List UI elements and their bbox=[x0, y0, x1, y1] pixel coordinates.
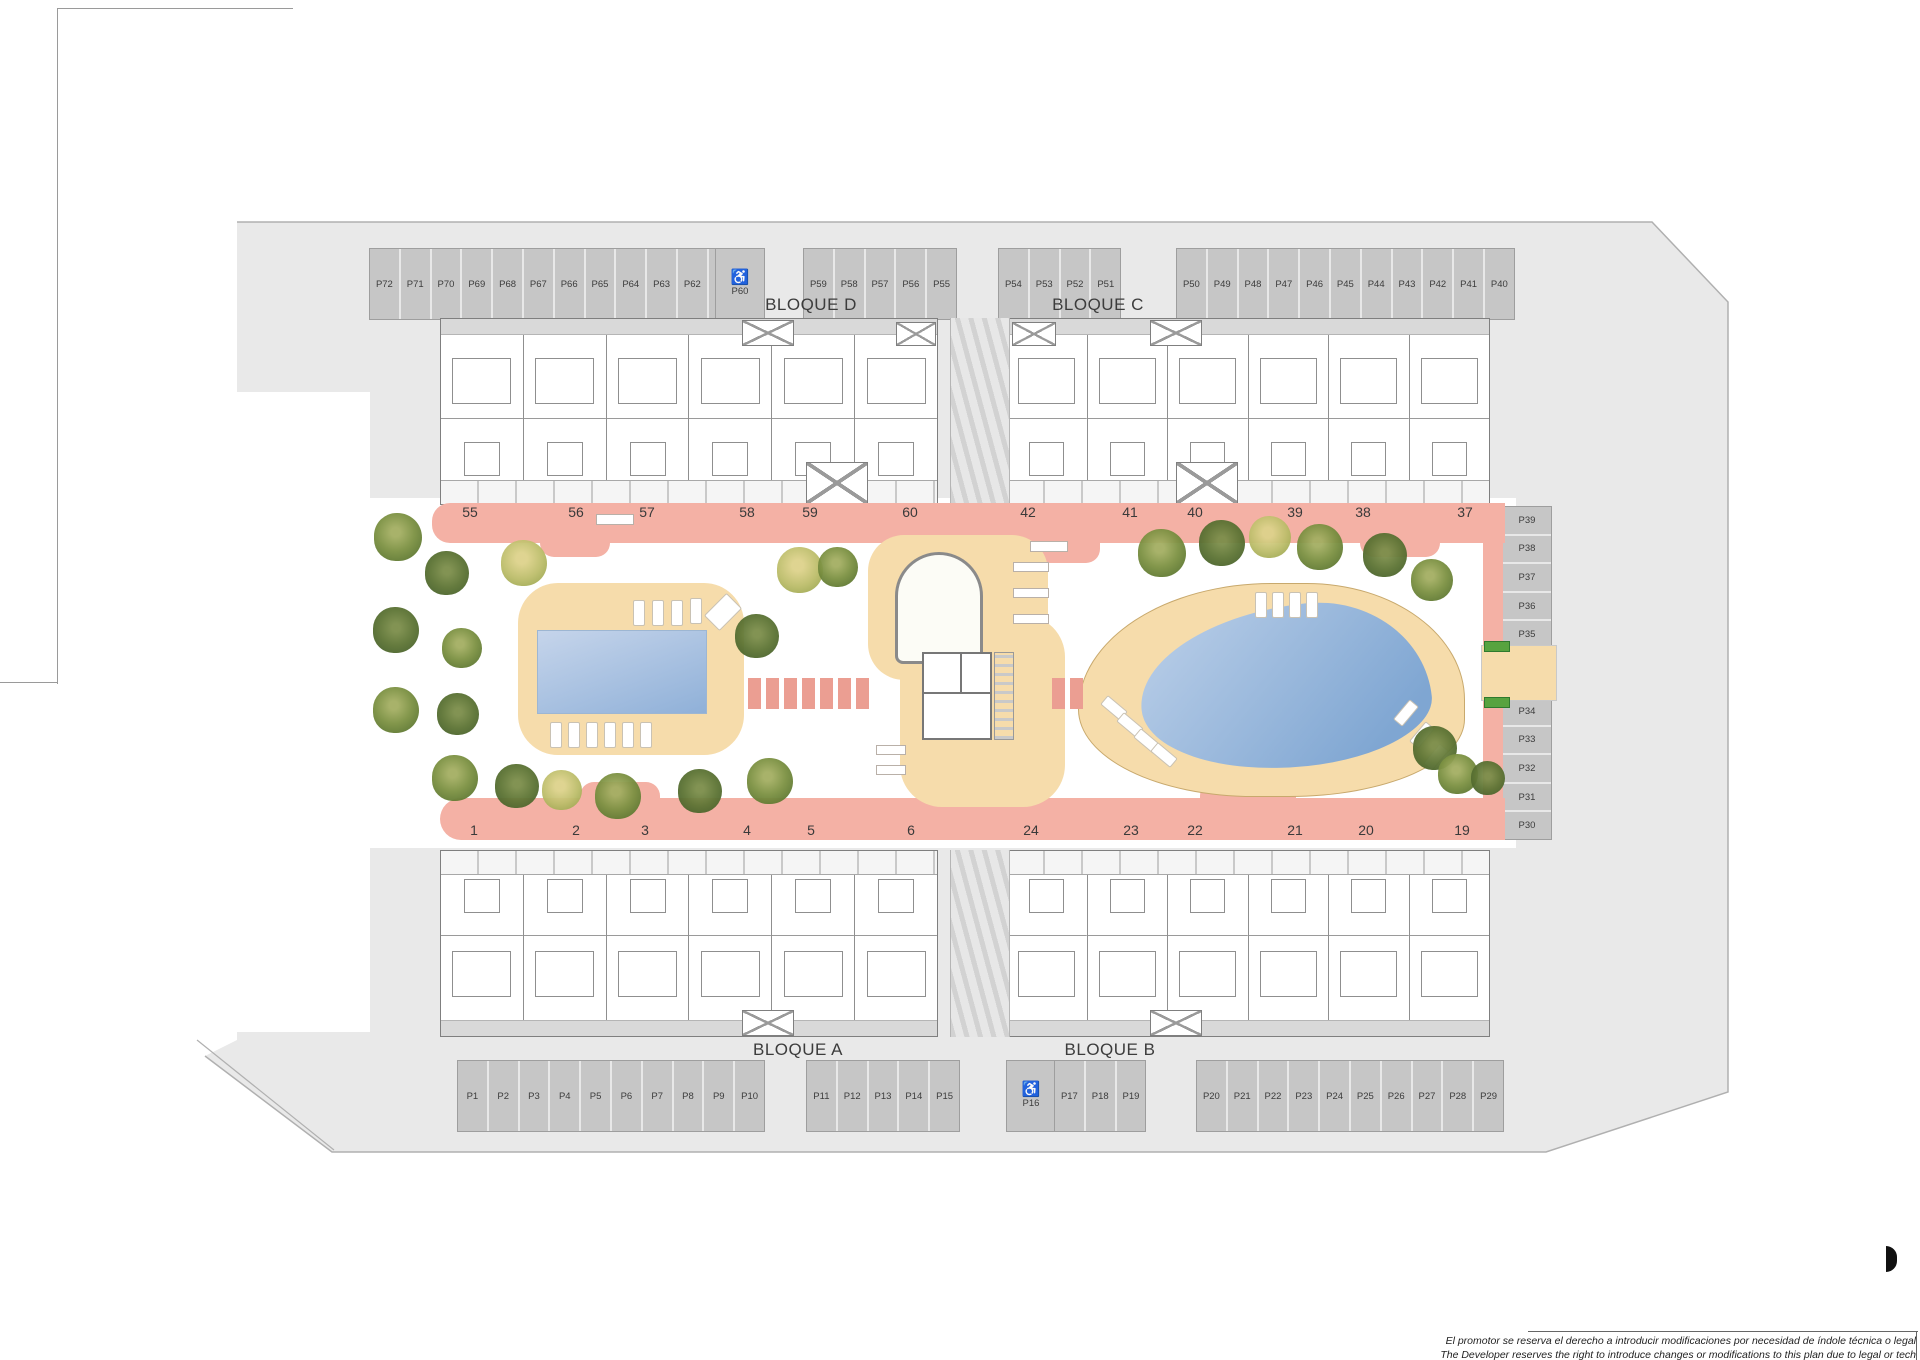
apartment-unit bbox=[1168, 335, 1249, 480]
tree-icon bbox=[501, 540, 547, 586]
tree-icon bbox=[1138, 529, 1186, 577]
tree-icon bbox=[818, 547, 858, 587]
parking-stall: P49 bbox=[1208, 249, 1239, 319]
parking-stall: P69 bbox=[462, 249, 493, 319]
parking-stall: P46 bbox=[1300, 249, 1331, 319]
parking-stall: P33 bbox=[1503, 727, 1551, 756]
stair-core bbox=[806, 462, 868, 504]
crosswalk-stripe bbox=[820, 678, 833, 709]
parking-stall: P12 bbox=[838, 1061, 869, 1131]
apartment-unit bbox=[1329, 875, 1410, 1020]
parking-stall-label: P28 bbox=[1449, 1091, 1466, 1102]
tree-icon bbox=[1297, 524, 1343, 570]
parking-stall: P31 bbox=[1503, 784, 1551, 813]
parking-stall-label: P34 bbox=[1519, 706, 1536, 717]
stair-core bbox=[742, 320, 794, 346]
stair-core bbox=[896, 322, 936, 346]
parking-stall-label: P15 bbox=[936, 1091, 953, 1102]
stair-core bbox=[1150, 320, 1202, 346]
gate-tag bbox=[1484, 697, 1510, 708]
parking-stall-accessible-p16: ♿ P16 bbox=[1007, 1061, 1055, 1131]
tree-icon bbox=[1199, 520, 1245, 566]
bench bbox=[876, 765, 906, 775]
apartment-unit bbox=[1249, 335, 1330, 480]
building-bloque-c bbox=[1006, 318, 1490, 505]
bench bbox=[596, 514, 634, 525]
tree-icon bbox=[373, 687, 419, 733]
parking-stall: P22 bbox=[1259, 1061, 1290, 1131]
parking-stall: P67 bbox=[524, 249, 555, 319]
crosswalk-stripe bbox=[1052, 678, 1065, 709]
unit-number: 19 bbox=[1454, 822, 1470, 838]
parking-group-bottom-mid-b: P17P18P19 bbox=[1055, 1061, 1145, 1131]
roof-strip bbox=[1007, 319, 1489, 335]
unit-numbers-top-right: 424140393837 bbox=[0, 504, 1920, 522]
driveway-hatch-top bbox=[950, 318, 1010, 505]
sun-lounger bbox=[550, 722, 562, 748]
parking-stall-label: P46 bbox=[1306, 279, 1323, 290]
unit-number: 23 bbox=[1123, 822, 1139, 838]
frame-top-line bbox=[57, 8, 293, 9]
unit-number: 22 bbox=[1187, 822, 1203, 838]
parking-stall: P38 bbox=[1503, 536, 1551, 565]
apartment-unit bbox=[441, 335, 524, 480]
parking-stall: P17 bbox=[1055, 1061, 1086, 1131]
page-registration-mark bbox=[1886, 1246, 1897, 1272]
parking-stall-label: P40 bbox=[1491, 279, 1508, 290]
tree-icon bbox=[1363, 533, 1407, 577]
tree-icon bbox=[777, 547, 823, 593]
parking-stall: P10 bbox=[735, 1061, 764, 1131]
parking-stall-label: P44 bbox=[1368, 279, 1385, 290]
tree-icon bbox=[1471, 761, 1505, 795]
parking-stall: P27 bbox=[1413, 1061, 1444, 1131]
parking-stall-label: P27 bbox=[1419, 1091, 1436, 1102]
sun-lounger bbox=[690, 598, 702, 624]
apartment-unit bbox=[607, 335, 690, 480]
sun-lounger bbox=[633, 600, 645, 626]
parking-stall: P57 bbox=[866, 249, 897, 319]
parking-stall: P20 bbox=[1197, 1061, 1228, 1131]
gate-tag bbox=[1484, 641, 1510, 652]
tree-icon bbox=[678, 769, 722, 813]
parking-stall-label: P14 bbox=[905, 1091, 922, 1102]
tree-icon bbox=[495, 764, 539, 808]
apartment-unit bbox=[1088, 875, 1169, 1020]
wheelchair-icon: ♿ bbox=[1022, 1083, 1041, 1097]
sun-lounger bbox=[586, 722, 598, 748]
bench bbox=[1030, 541, 1068, 552]
tree-icon bbox=[595, 773, 641, 819]
apartment-unit bbox=[1088, 335, 1169, 480]
parking-stall-label: P67 bbox=[530, 279, 547, 290]
titleblock-side-line bbox=[1916, 1331, 1917, 1360]
parking-stall-label: P47 bbox=[1275, 279, 1292, 290]
parking-stall-label: P18 bbox=[1092, 1091, 1109, 1102]
parking-stall: P56 bbox=[896, 249, 927, 319]
tree-icon bbox=[442, 628, 482, 668]
frame-left-tick bbox=[0, 682, 57, 683]
unit-number: 42 bbox=[1020, 504, 1036, 520]
parking-stall: P37 bbox=[1503, 564, 1551, 593]
parking-stall: P36 bbox=[1503, 593, 1551, 622]
crosswalk-stripe bbox=[1070, 678, 1083, 709]
parking-stall-label: P33 bbox=[1519, 734, 1536, 745]
crosswalk-stripe bbox=[766, 678, 779, 709]
unit-number: 37 bbox=[1457, 504, 1473, 520]
parking-stall-label: P38 bbox=[1519, 543, 1536, 554]
parking-stall-label: P29 bbox=[1480, 1091, 1497, 1102]
parking-stall: P21 bbox=[1228, 1061, 1259, 1131]
parking-stall-label: P21 bbox=[1234, 1091, 1251, 1102]
apartment-unit bbox=[689, 335, 772, 480]
tree-icon bbox=[432, 755, 478, 801]
tree-icon bbox=[1249, 516, 1291, 558]
playground-enclosure bbox=[895, 552, 983, 664]
parking-stall: P70 bbox=[432, 249, 463, 319]
parking-stall: P71 bbox=[401, 249, 432, 319]
tree-icon bbox=[542, 770, 582, 810]
parking-stall-label: P31 bbox=[1519, 792, 1536, 803]
entrance-gate-area bbox=[1481, 645, 1557, 701]
parking-stall-label: P25 bbox=[1357, 1091, 1374, 1102]
parking-stall-label: P69 bbox=[468, 279, 485, 290]
apartment-unit bbox=[1410, 875, 1490, 1020]
disclaimer: El promotor se reserva el derecho a intr… bbox=[1440, 1335, 1916, 1360]
parking-stall: P19 bbox=[1117, 1061, 1146, 1131]
parking-stall-label: P72 bbox=[376, 279, 393, 290]
parking-stall-label: P62 bbox=[684, 279, 701, 290]
parking-stall-label: P36 bbox=[1519, 601, 1536, 612]
tree-icon bbox=[735, 614, 779, 658]
parking-stall: P42 bbox=[1423, 249, 1454, 319]
apartment-unit bbox=[441, 875, 524, 1020]
parking-stall-label: P3 bbox=[528, 1091, 540, 1102]
tree-icon bbox=[373, 607, 419, 653]
parking-stall-label: P13 bbox=[875, 1091, 892, 1102]
parking-stall: P47 bbox=[1269, 249, 1300, 319]
parking-stall-label: P9 bbox=[713, 1091, 725, 1102]
parking-stall-label: P52 bbox=[1067, 279, 1084, 290]
parking-stall-label: P1 bbox=[467, 1091, 479, 1102]
parking-stall: P55 bbox=[927, 249, 956, 319]
apartment-unit bbox=[524, 335, 607, 480]
parking-stall: P68 bbox=[493, 249, 524, 319]
sun-lounger bbox=[1289, 592, 1301, 618]
unit-number: 20 bbox=[1358, 822, 1374, 838]
parking-stall-label: P5 bbox=[590, 1091, 602, 1102]
terrace-strip bbox=[1007, 851, 1489, 875]
stair-core bbox=[1012, 322, 1056, 346]
parking-stall: P9 bbox=[704, 1061, 735, 1131]
parking-stall-label: P24 bbox=[1326, 1091, 1343, 1102]
apartment-unit bbox=[1249, 875, 1330, 1020]
parking-stall-label: P42 bbox=[1429, 279, 1446, 290]
parking-stall-label: P59 bbox=[810, 279, 827, 290]
crosswalk-stripe bbox=[802, 678, 815, 709]
parking-stall: P44 bbox=[1362, 249, 1393, 319]
parking-stall: P28 bbox=[1443, 1061, 1474, 1131]
parking-stall-label: P63 bbox=[653, 279, 670, 290]
tree-icon bbox=[1411, 559, 1453, 601]
parking-stall-label: P56 bbox=[902, 279, 919, 290]
parking-stall: P66 bbox=[555, 249, 586, 319]
parking-stall-label: P53 bbox=[1036, 279, 1053, 290]
parking-group-bottom-left: P1P2P3P4P5P6P7P8P9P10 bbox=[458, 1061, 764, 1131]
disclaimer-line-es: El promotor se reserva el derecho a intr… bbox=[1440, 1335, 1916, 1349]
parking-stall: P72 bbox=[370, 249, 401, 319]
driveway-hatch-bottom bbox=[950, 850, 1010, 1037]
pool-house bbox=[922, 652, 992, 740]
parking-group-top-right: P50P49P48P47P46P45P44P43P42P41P40 bbox=[1177, 249, 1514, 319]
parking-stall-label: P57 bbox=[872, 279, 889, 290]
parking-stall-label: P50 bbox=[1183, 279, 1200, 290]
apartment-unit bbox=[1329, 335, 1410, 480]
parking-stall-label: P8 bbox=[682, 1091, 694, 1102]
parking-stall-label: P54 bbox=[1005, 279, 1022, 290]
parking-stall-label: P11 bbox=[813, 1091, 829, 1102]
stair-core bbox=[742, 1010, 794, 1036]
stair-core bbox=[1176, 462, 1238, 504]
parking-stall-accessible-p60: ♿ P60 bbox=[716, 249, 764, 319]
unit-numbers-bottom-right: 242322212019 bbox=[0, 822, 1920, 840]
bench bbox=[1013, 588, 1049, 598]
parking-stall-label: P10 bbox=[741, 1091, 758, 1102]
parking-stall: P65 bbox=[586, 249, 617, 319]
roof-strip bbox=[441, 319, 937, 335]
parking-group-right-lower: P34P33P32P31P30 bbox=[1503, 698, 1551, 839]
unit-number: 40 bbox=[1187, 504, 1203, 520]
apartment-unit bbox=[1410, 335, 1490, 480]
parking-stall: P6 bbox=[612, 1061, 643, 1131]
parking-stall: P35 bbox=[1503, 621, 1551, 648]
parking-stall: P48 bbox=[1239, 249, 1270, 319]
parking-stall-label: P64 bbox=[622, 279, 639, 290]
titleblock-top-line bbox=[1528, 1331, 1918, 1332]
parking-stall: P43 bbox=[1393, 249, 1424, 319]
parking-stall: P63 bbox=[647, 249, 678, 319]
parking-stall-label: P19 bbox=[1123, 1091, 1140, 1102]
parking-stall: P15 bbox=[930, 1061, 959, 1131]
parking-stall: P50 bbox=[1177, 249, 1208, 319]
parking-stall: P8 bbox=[674, 1061, 705, 1131]
parking-stall: P18 bbox=[1086, 1061, 1117, 1131]
left-pool-water bbox=[537, 630, 707, 714]
parking-stall-label: P2 bbox=[497, 1091, 509, 1102]
bench bbox=[1013, 562, 1049, 572]
apartment-unit bbox=[607, 875, 690, 1020]
wheelchair-icon: ♿ bbox=[731, 271, 750, 285]
parking-stall: P32 bbox=[1503, 755, 1551, 784]
parking-stall-label: P49 bbox=[1214, 279, 1231, 290]
parking-stall-label: P66 bbox=[561, 279, 578, 290]
parking-stall: P25 bbox=[1351, 1061, 1382, 1131]
crosswalk-stripe bbox=[856, 678, 869, 709]
sun-lounger bbox=[1272, 592, 1284, 618]
parking-stall-label: P35 bbox=[1519, 629, 1536, 640]
apartment-unit bbox=[524, 875, 607, 1020]
parking-stall: P14 bbox=[899, 1061, 930, 1131]
parking-stall: P1 bbox=[458, 1061, 489, 1131]
sun-lounger bbox=[652, 600, 664, 626]
sun-lounger bbox=[671, 600, 683, 626]
parking-stall-label: P4 bbox=[559, 1091, 571, 1102]
parking-stall-label: P17 bbox=[1061, 1091, 1078, 1102]
bench bbox=[876, 745, 906, 755]
parking-stall-label: P65 bbox=[592, 279, 609, 290]
parking-stall: P7 bbox=[643, 1061, 674, 1131]
apartment-unit bbox=[855, 875, 937, 1020]
parking-group-right-upper: P39P38P37P36P35 bbox=[1503, 507, 1551, 648]
label-bloque-c: BLOQUE C bbox=[1052, 295, 1144, 315]
parking-stall-label: P70 bbox=[438, 279, 455, 290]
parking-stall-label: P26 bbox=[1388, 1091, 1405, 1102]
parking-stall-label: P16 bbox=[1023, 1098, 1040, 1109]
parking-stall: P11 bbox=[807, 1061, 838, 1131]
frame-left-line bbox=[57, 8, 58, 684]
apartment-unit bbox=[772, 875, 855, 1020]
sun-lounger bbox=[1306, 592, 1318, 618]
unit-number: 41 bbox=[1122, 504, 1138, 520]
parking-stall-label: P12 bbox=[844, 1091, 861, 1102]
apartment-unit bbox=[1168, 875, 1249, 1020]
parking-group-bottom-right: P20P21P22P23P24P25P26P27P28P29 bbox=[1197, 1061, 1503, 1131]
sun-lounger bbox=[622, 722, 634, 748]
parking-stall: P23 bbox=[1289, 1061, 1320, 1131]
path-planter bbox=[540, 541, 610, 557]
parking-stall-label: P43 bbox=[1399, 279, 1416, 290]
tree-icon bbox=[747, 758, 793, 804]
label-bloque-b: BLOQUE B bbox=[1065, 1040, 1156, 1060]
crosswalk-stripe bbox=[748, 678, 761, 709]
parking-stall-label: P68 bbox=[499, 279, 516, 290]
bench bbox=[1013, 614, 1049, 624]
unit-number: 39 bbox=[1287, 504, 1303, 520]
parking-stall-label: P60 bbox=[732, 286, 749, 297]
parking-group-top-left: P72P71P70P69P68P67P66P65P64P63P62P61 bbox=[370, 249, 738, 319]
unit-number: 24 bbox=[1023, 822, 1039, 838]
parking-stall-label: P22 bbox=[1265, 1091, 1282, 1102]
building-bloque-a bbox=[440, 850, 938, 1037]
terrace-strip bbox=[441, 851, 937, 875]
unit-number: 21 bbox=[1287, 822, 1303, 838]
disclaimer-line-en: The Developer reserves the right to intr… bbox=[1440, 1349, 1916, 1360]
site-plan-sheet: P72P71P70P69P68P67P66P65P64P63P62P61 ♿ P… bbox=[0, 0, 1920, 1360]
crosswalk-stripe bbox=[838, 678, 851, 709]
parking-stall: P26 bbox=[1382, 1061, 1413, 1131]
apartment-unit bbox=[772, 335, 855, 480]
tree-icon bbox=[374, 513, 422, 561]
parking-stall-label: P51 bbox=[1097, 279, 1114, 290]
parking-stall: P29 bbox=[1474, 1061, 1503, 1131]
parking-stall: P62 bbox=[678, 249, 709, 319]
apartment-unit bbox=[855, 335, 937, 480]
parking-stall-label: P32 bbox=[1519, 763, 1536, 774]
parking-stall-label: P58 bbox=[841, 279, 858, 290]
sun-lounger bbox=[568, 722, 580, 748]
pool-house-ramp bbox=[994, 652, 1014, 740]
parking-stall: P41 bbox=[1454, 249, 1485, 319]
sun-lounger bbox=[1255, 592, 1267, 618]
parking-stall: P40 bbox=[1485, 249, 1514, 319]
parking-stall-label: P45 bbox=[1337, 279, 1354, 290]
parking-stall: P45 bbox=[1331, 249, 1362, 319]
parking-stall-label: P48 bbox=[1245, 279, 1262, 290]
sheet-margin-patch bbox=[100, 392, 370, 1032]
sun-lounger bbox=[604, 722, 616, 748]
unit-number: 38 bbox=[1355, 504, 1371, 520]
tree-icon bbox=[437, 693, 479, 735]
parking-stall: P4 bbox=[550, 1061, 581, 1131]
label-bloque-d: BLOQUE D bbox=[765, 295, 857, 315]
roof-strip bbox=[1007, 1020, 1489, 1036]
parking-stall-label: P41 bbox=[1460, 279, 1477, 290]
parking-stall: P5 bbox=[581, 1061, 612, 1131]
terrace-strip bbox=[1007, 480, 1489, 504]
parking-stall: P3 bbox=[520, 1061, 551, 1131]
parking-stall: P54 bbox=[999, 249, 1030, 319]
parking-stall-label: P6 bbox=[621, 1091, 633, 1102]
parking-stall: P2 bbox=[489, 1061, 520, 1131]
parking-stall-label: P55 bbox=[933, 279, 950, 290]
parking-stall-label: P37 bbox=[1519, 572, 1536, 583]
building-bloque-b bbox=[1006, 850, 1490, 1037]
apartment-unit bbox=[1007, 875, 1088, 1020]
parking-stall: P24 bbox=[1320, 1061, 1351, 1131]
parking-group-bottom-mid: P11P12P13P14P15 bbox=[807, 1061, 959, 1131]
parking-stall-label: P23 bbox=[1295, 1091, 1312, 1102]
parking-stall: P34 bbox=[1503, 698, 1551, 727]
parking-stall-label: P71 bbox=[407, 279, 424, 290]
parking-stall: P13 bbox=[869, 1061, 900, 1131]
label-bloque-a: BLOQUE A bbox=[753, 1040, 843, 1060]
roof-strip bbox=[441, 1020, 937, 1036]
apartment-unit bbox=[689, 875, 772, 1020]
parking-stall-label: P20 bbox=[1203, 1091, 1220, 1102]
stair-core bbox=[1150, 1010, 1202, 1036]
parking-stall: P64 bbox=[616, 249, 647, 319]
tree-icon bbox=[425, 551, 469, 595]
crosswalk-stripe bbox=[784, 678, 797, 709]
sun-lounger bbox=[640, 722, 652, 748]
apartment-unit bbox=[1007, 335, 1088, 480]
parking-stall-label: P7 bbox=[651, 1091, 663, 1102]
